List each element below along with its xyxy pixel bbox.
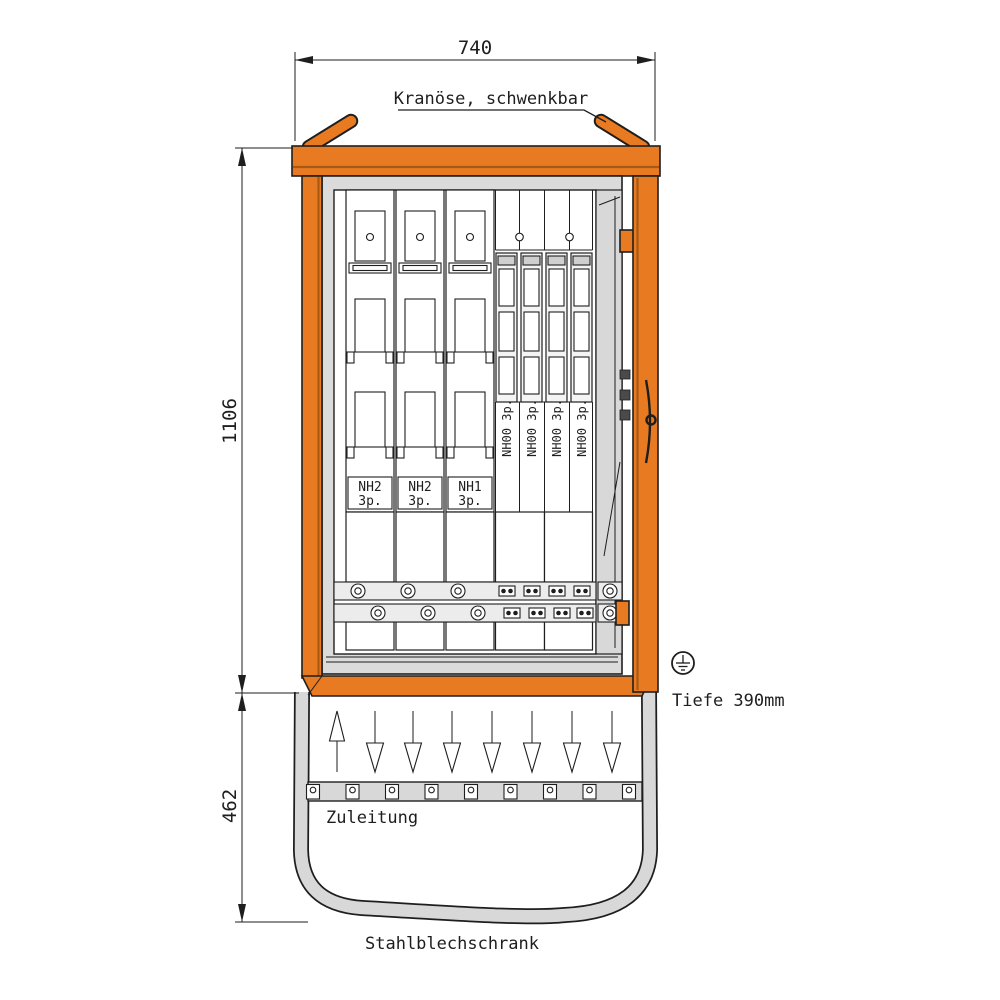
nh00-strip-label: NH00 3p.	[550, 399, 564, 457]
module-type-label: NH2	[408, 480, 431, 495]
cabinet-type-label: Stahlblechschrank	[365, 934, 539, 954]
outgoing-arrow-down-icon	[524, 711, 541, 772]
knob-icon	[467, 234, 474, 241]
screw-icon	[401, 584, 415, 598]
cable-clamp	[386, 785, 399, 800]
cable-clamp	[307, 785, 320, 800]
cable-clamp	[346, 785, 359, 800]
crane-eye-left-icon	[309, 121, 351, 147]
door-hinge-clips	[620, 370, 630, 420]
terminal-clamp	[499, 586, 515, 596]
fuse-module-1: NH2 3p.	[346, 190, 394, 512]
module-poles-label: 3p.	[358, 494, 381, 509]
outgoing-arrow-down-icon	[444, 711, 461, 772]
module-type-label: NH2	[358, 480, 381, 495]
terminal-clamp	[504, 608, 520, 618]
nh00-strip-4	[571, 253, 592, 402]
leader-line	[398, 110, 606, 122]
knob-icon	[566, 233, 574, 241]
outgoing-arrow-down-icon	[484, 711, 501, 772]
fuse-window	[549, 312, 564, 351]
depth-label: Tiefe 390mm	[672, 691, 785, 711]
fuse-window	[524, 269, 539, 306]
terminal-clamp	[554, 608, 570, 618]
fuse-window	[405, 299, 435, 352]
screw-icon	[371, 606, 385, 620]
fuse-window	[499, 312, 514, 351]
nh00-strip-label: NH00 3p.	[575, 399, 589, 457]
nh00-strip-1	[496, 253, 517, 402]
cabinet-drawing: Zuleitung	[0, 0, 1000, 1000]
nh00-strip-2	[521, 253, 542, 402]
outgoing-arrow-down-icon	[405, 711, 422, 772]
cable-clamp	[544, 785, 557, 800]
terminal-rail-2	[334, 601, 629, 625]
screw-icon	[471, 606, 485, 620]
earth-icon	[672, 652, 694, 674]
terminal-clamp	[524, 586, 540, 596]
cable-clamp	[425, 785, 438, 800]
outgoing-arrow-down-icon	[604, 711, 621, 772]
cable-clamp	[504, 785, 517, 800]
supply-label: Zuleitung	[326, 808, 418, 828]
fuse-window	[455, 299, 485, 352]
fuse-window	[574, 312, 589, 351]
fuse-window	[355, 392, 385, 447]
outgoing-arrow-down-icon	[564, 711, 581, 772]
rail-clip	[616, 601, 629, 625]
dimension-height-value: 1106	[219, 398, 241, 444]
fuse-module-2: NH2 3p.	[396, 190, 444, 512]
frame-left	[302, 176, 322, 678]
terminal-clamp	[577, 608, 593, 618]
frame-bottom	[302, 676, 652, 696]
fuse-window	[524, 312, 539, 351]
screw-icon	[421, 606, 435, 620]
fuse-window	[499, 269, 514, 306]
screw-icon	[451, 584, 465, 598]
crane-eye-annotation: Kranöse, schwenkbar	[394, 89, 606, 122]
screw-icon	[603, 606, 617, 620]
fuse-window	[549, 269, 564, 306]
terminal-clamp	[574, 586, 590, 596]
cable-clamp	[623, 785, 636, 800]
base-outline	[301, 692, 650, 916]
module-poles-label: 3p.	[458, 494, 481, 509]
dimension-base-value: 462	[219, 789, 241, 823]
fuse-window	[355, 299, 385, 352]
cable-clamp	[465, 785, 478, 800]
module-poles-label: 3p.	[408, 494, 431, 509]
module-type-label: NH1	[458, 480, 481, 495]
nh00-strip-label: NH00 3p.	[500, 399, 514, 457]
crane-eye-label: Kranöse, schwenkbar	[394, 89, 588, 109]
base-tube	[301, 692, 650, 916]
fuse-window	[499, 357, 514, 394]
cable-clamp	[583, 785, 596, 800]
terminal-clamp	[549, 586, 565, 596]
fuse-window	[455, 392, 485, 447]
cable-clamp-rail	[307, 782, 643, 801]
nh00-strip-3	[546, 253, 567, 402]
terminal-clamp	[529, 608, 545, 618]
fuse-module-3: NH1 3p.	[446, 190, 494, 512]
outgoing-arrow-down-icon	[367, 711, 384, 772]
knob-icon	[367, 234, 374, 241]
screw-icon	[351, 584, 365, 598]
fuse-window	[549, 357, 564, 394]
cabinet-roof	[292, 146, 660, 176]
fuse-window	[405, 392, 435, 447]
fuse-window	[574, 357, 589, 394]
dimension-width-value: 740	[458, 37, 492, 59]
fuse-window	[574, 269, 589, 306]
dimension-height: 1106	[219, 148, 299, 693]
fuse-window	[524, 357, 539, 394]
knob-icon	[417, 234, 424, 241]
technical-drawing-page: Zuleitung	[0, 0, 1000, 1000]
base-frame	[301, 692, 650, 916]
terminal-rail-1	[334, 582, 622, 600]
nh00-strip-label: NH00 3p.	[525, 399, 539, 457]
screw-icon	[603, 584, 617, 598]
cable-arrows	[330, 711, 621, 772]
crane-eye-right-icon	[601, 121, 643, 147]
supply-arrow-up-icon	[330, 711, 345, 772]
knob-icon	[516, 233, 524, 241]
